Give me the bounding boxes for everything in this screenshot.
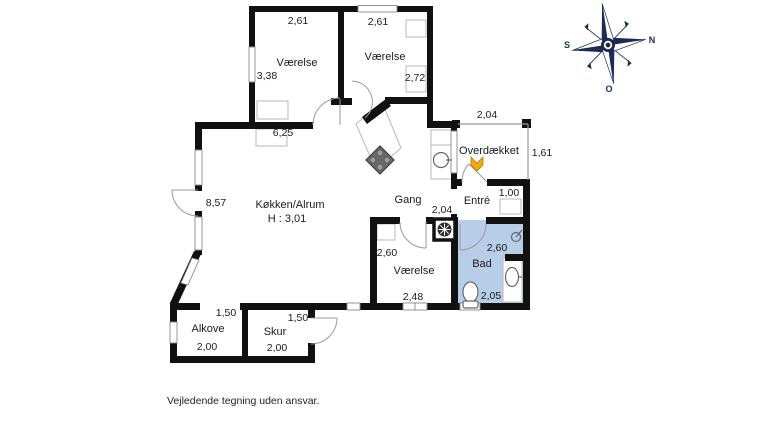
floor-plan-page: S N O Værelse 2,61 3,38 Værelse 2,61 2,7… xyxy=(0,0,768,422)
door-jamb xyxy=(426,217,433,224)
wall-segment xyxy=(486,217,523,224)
dimension-label: 2,04 xyxy=(432,204,453,216)
window xyxy=(170,322,177,343)
wall-segment xyxy=(315,303,347,310)
dimension-label: 2,05 xyxy=(481,290,502,302)
dimension-label: 3,38 xyxy=(257,70,278,82)
room-label: Gang xyxy=(395,194,422,206)
dimension-label: 2,00 xyxy=(197,341,218,353)
toilet-tank xyxy=(463,301,478,308)
wall-segment xyxy=(360,303,403,310)
dimension-label: 2,60 xyxy=(377,247,398,259)
dimension-label: 2,00 xyxy=(267,342,288,354)
compass-label-o: O xyxy=(605,84,612,94)
dimension-label: 6,25 xyxy=(273,127,294,139)
wall-segment xyxy=(249,6,255,47)
wall-segment xyxy=(487,179,530,186)
window xyxy=(451,131,457,173)
wall-segment xyxy=(451,182,457,189)
room-label: Køkken/Alrum xyxy=(255,199,324,211)
wall-segment xyxy=(523,182,530,310)
wall-segment xyxy=(240,303,315,310)
door-arc xyxy=(172,190,198,216)
wall-segment xyxy=(370,217,377,310)
window xyxy=(195,150,202,185)
room-label: Værelse xyxy=(394,265,435,277)
ceiling-height-label: H : 3,01 xyxy=(268,213,307,225)
entry-niche xyxy=(500,199,521,214)
disclaimer-text: Vejledende tegning uden ansvar. xyxy=(167,395,319,407)
floor-plan-drawing: S N O Værelse 2,61 3,38 Værelse 2,61 2,7… xyxy=(0,0,768,422)
compass-label-s: S xyxy=(564,40,570,50)
wall-segment xyxy=(195,122,313,129)
room-label: Værelse xyxy=(365,51,406,63)
wall-segment xyxy=(195,122,202,150)
door-arc xyxy=(462,164,469,182)
door-arc xyxy=(352,81,372,118)
dimension-label: 2,48 xyxy=(403,291,424,303)
room-label: Skur xyxy=(264,326,287,338)
room-label: Værelse xyxy=(277,57,318,69)
sink-icon xyxy=(506,268,519,287)
wall-segment xyxy=(451,173,457,183)
compass-label-n: N xyxy=(649,35,656,45)
wall-segment xyxy=(338,6,344,100)
dimension-label: 2,61 xyxy=(368,16,389,28)
fan-hub xyxy=(443,228,446,231)
dimension-label: 2,61 xyxy=(288,15,309,27)
compass-star xyxy=(569,0,648,86)
wall-segment xyxy=(242,303,248,363)
room-label: Bad xyxy=(472,258,492,270)
wall-segment xyxy=(385,97,427,104)
wall-segment xyxy=(427,6,433,128)
wardrobe xyxy=(257,101,288,119)
wall-segment xyxy=(480,303,530,310)
wall-segment xyxy=(308,343,315,363)
dimension-label: 2,60 xyxy=(487,242,508,254)
dimension-label: 1,61 xyxy=(532,147,553,159)
dimension-label: 8,57 xyxy=(206,197,227,209)
compass-rose: S N O xyxy=(564,0,655,94)
dimension-label: 1,50 xyxy=(216,307,237,319)
door-arc xyxy=(311,318,337,344)
window xyxy=(358,6,397,13)
window xyxy=(195,217,202,250)
room-label: Alkove xyxy=(191,323,224,335)
toilet-icon xyxy=(463,282,478,302)
window xyxy=(347,303,360,310)
window xyxy=(181,258,199,285)
wall-segment xyxy=(308,303,315,318)
room-label: Entré xyxy=(464,195,490,207)
wall-segment xyxy=(249,82,255,129)
door-arc xyxy=(400,222,426,248)
dimension-label: 2,72 xyxy=(405,72,426,84)
dimension-label: 1,00 xyxy=(499,187,520,199)
dimension-label: 1,50 xyxy=(288,312,309,324)
wall-segment xyxy=(173,303,200,310)
wardrobe xyxy=(406,20,426,37)
shower-niche-wall xyxy=(505,254,523,261)
window xyxy=(249,47,255,82)
entrance-arrow-icon xyxy=(471,157,483,171)
wardrobe xyxy=(377,224,395,240)
room-label: Overdækket xyxy=(459,145,519,157)
dimension-label: 2,04 xyxy=(477,109,498,121)
